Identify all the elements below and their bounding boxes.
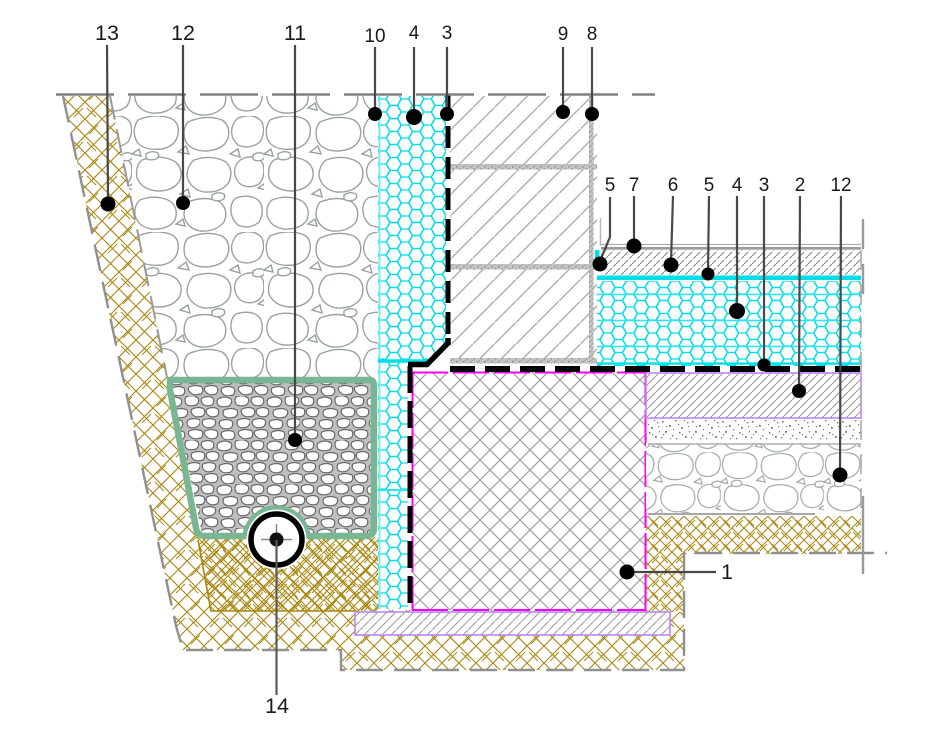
svg-text:12: 12 [171, 21, 195, 45]
svg-text:1: 1 [721, 560, 733, 584]
svg-text:8: 8 [587, 24, 598, 45]
svg-text:12: 12 [830, 175, 851, 196]
svg-text:9: 9 [558, 24, 569, 45]
svg-text:2: 2 [795, 175, 806, 196]
svg-text:13: 13 [95, 21, 119, 45]
svg-text:3: 3 [442, 23, 453, 44]
svg-text:10: 10 [364, 26, 385, 47]
svg-text:6: 6 [668, 175, 679, 196]
svg-text:4: 4 [409, 23, 420, 44]
svg-text:5: 5 [605, 175, 616, 196]
svg-text:7: 7 [629, 175, 640, 196]
svg-text:14: 14 [265, 694, 289, 718]
svg-text:11: 11 [284, 21, 306, 45]
svg-text:5: 5 [704, 175, 715, 196]
svg-text:3: 3 [759, 175, 770, 196]
svg-text:4: 4 [732, 175, 743, 196]
